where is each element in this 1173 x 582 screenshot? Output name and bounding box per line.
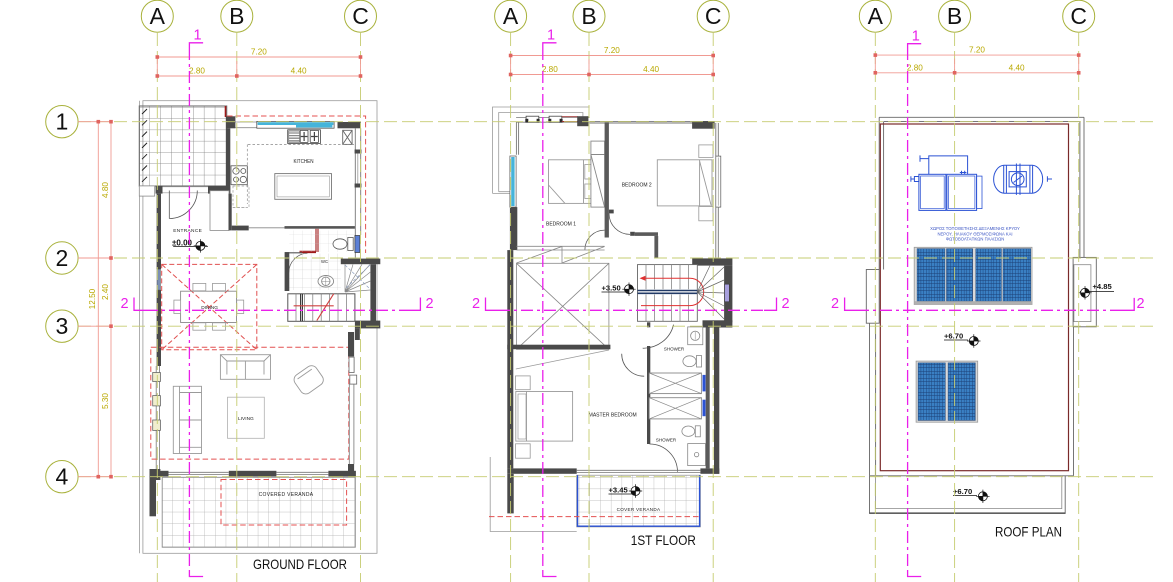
svg-text:2.80: 2.80 <box>542 65 558 74</box>
svg-text:1: 1 <box>56 109 69 135</box>
svg-text:2: 2 <box>831 296 839 312</box>
svg-text:4.80: 4.80 <box>101 182 110 198</box>
svg-text:2: 2 <box>472 296 480 312</box>
svg-text:SHOWER: SHOWER <box>664 347 685 352</box>
svg-text:B: B <box>947 3 962 29</box>
svg-text:12.50: 12.50 <box>88 288 97 309</box>
svg-text:4: 4 <box>56 464 69 490</box>
svg-text:2.80: 2.80 <box>907 63 923 72</box>
svg-text:C: C <box>705 3 722 29</box>
svg-text:7.20: 7.20 <box>604 46 620 55</box>
svg-text:KITCHEN: KITCHEN <box>294 159 314 165</box>
svg-text:2: 2 <box>1137 296 1145 312</box>
svg-text:2: 2 <box>426 296 434 312</box>
svg-text:ENTRANCE: ENTRANCE <box>173 228 202 234</box>
svg-text:2.40: 2.40 <box>101 284 110 300</box>
svg-text:1: 1 <box>912 28 920 44</box>
svg-text:4.40: 4.40 <box>291 67 307 76</box>
svg-text:C: C <box>352 3 369 29</box>
svg-text:7.20: 7.20 <box>251 48 267 57</box>
svg-text:2: 2 <box>121 296 129 312</box>
svg-text:+3.50: +3.50 <box>602 284 621 293</box>
svg-text:GROUND FLOOR: GROUND FLOOR <box>253 556 347 572</box>
svg-text:LIVING: LIVING <box>238 416 254 422</box>
svg-text:COVER VERANDA: COVER VERANDA <box>617 507 661 512</box>
svg-text:ΧΩΡΟΣ ΤΟΠΟΘΕΤΗΣΗΣ ΔΕΞΑΜΕΝΗΣ ΚΡ: ΧΩΡΟΣ ΤΟΠΟΘΕΤΗΣΗΣ ΔΕΞΑΜΕΝΗΣ ΚΡΥΟΥ <box>930 226 1020 231</box>
svg-text:1: 1 <box>547 28 555 44</box>
svg-text:1: 1 <box>194 28 202 44</box>
svg-text:7.20: 7.20 <box>969 46 985 55</box>
svg-text:4.40: 4.40 <box>1009 63 1025 72</box>
svg-text:B: B <box>581 3 596 29</box>
svg-text:4.40: 4.40 <box>643 65 659 74</box>
svg-text:SHOWER: SHOWER <box>656 438 677 443</box>
svg-text:1ST FLOOR: 1ST FLOOR <box>631 532 696 548</box>
svg-text:A: A <box>150 3 166 29</box>
svg-text:+3.45: +3.45 <box>609 486 629 495</box>
svg-text:+6.70: +6.70 <box>944 332 963 341</box>
svg-text:BEDROOM 2: BEDROOM 2 <box>622 183 652 189</box>
svg-text:ROOF PLAN: ROOF PLAN <box>995 524 1062 540</box>
svg-text:A: A <box>868 3 884 29</box>
svg-text:C: C <box>1070 3 1087 29</box>
svg-text:5.30: 5.30 <box>101 393 110 409</box>
svg-text:BEDROOM 1: BEDROOM 1 <box>546 222 576 228</box>
svg-text:2: 2 <box>782 296 790 312</box>
svg-text:2: 2 <box>56 245 69 271</box>
svg-text:COVERED VERANDA: COVERED VERANDA <box>259 492 314 498</box>
svg-text:B: B <box>229 3 244 29</box>
svg-text:A: A <box>503 3 519 29</box>
svg-text:MASTER BEDROOM: MASTER BEDROOM <box>589 413 637 419</box>
svg-text:3: 3 <box>56 313 69 339</box>
svg-text:+6.70: +6.70 <box>953 487 972 496</box>
svg-text:2.80: 2.80 <box>189 67 205 76</box>
svg-text:+4.85: +4.85 <box>1093 282 1113 291</box>
